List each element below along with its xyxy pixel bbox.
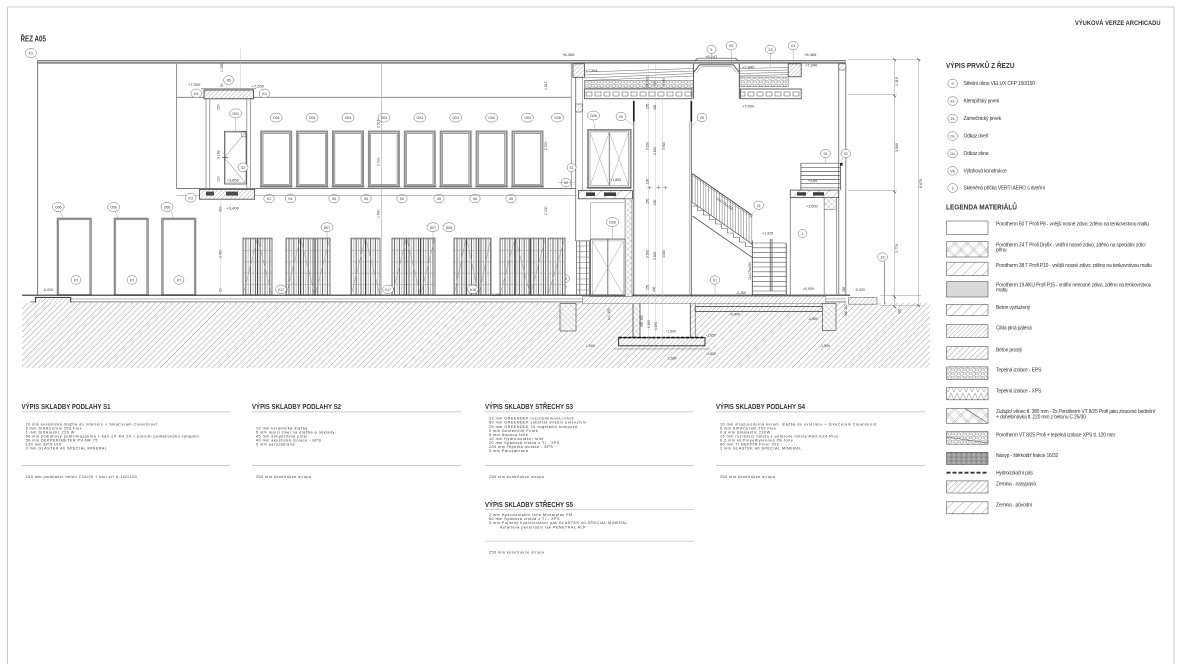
svg-text:8 670: 8 670 xyxy=(919,179,923,188)
svg-text:+3,85: +3,85 xyxy=(808,179,817,183)
svg-text:Hydroizolační pás: Hydroizolační pás xyxy=(996,470,1033,476)
svg-text:14 / 150: 14 / 150 xyxy=(607,308,611,320)
svg-text:100: 100 xyxy=(217,176,221,182)
svg-text:Zx: Zx xyxy=(951,117,955,121)
svg-text:400: 400 xyxy=(652,286,656,292)
svg-text:1 250: 1 250 xyxy=(654,322,658,330)
svg-text:O06: O06 xyxy=(110,206,117,210)
svg-text:K6: K6 xyxy=(437,197,441,201)
svg-text:Z3: Z3 xyxy=(881,256,885,260)
svg-text:490: 490 xyxy=(898,308,902,314)
svg-text:250: 250 xyxy=(645,103,649,109)
svg-text:S5: S5 xyxy=(226,79,230,83)
svg-text:VÝPIS PRVKŮ Z ŘEZU: VÝPIS PRVKŮ Z ŘEZU xyxy=(946,60,1015,70)
svg-text:D07: D07 xyxy=(324,226,330,230)
svg-text:Porotherm 38 T Profi P10 - vně: Porotherm 38 T Profi P10 - vnější nosné … xyxy=(996,263,1152,269)
svg-text:Kx: Kx xyxy=(950,100,954,104)
svg-text:3 500: 3 500 xyxy=(895,143,899,152)
svg-text:950 150: 950 150 xyxy=(640,315,644,327)
svg-text:VÝPIS SKLADBY PODLAHY S1: VÝPIS SKLADBY PODLAHY S1 xyxy=(22,402,111,411)
svg-text:K1: K1 xyxy=(267,197,271,201)
svg-text:Beton vyztužený: Beton vyztužený xyxy=(996,305,1031,311)
svg-text:+1,925: +1,925 xyxy=(762,232,773,236)
svg-text:O06: O06 xyxy=(55,206,62,210)
svg-text:ŘEZ A05: ŘEZ A05 xyxy=(21,33,47,44)
svg-text:O08: O08 xyxy=(554,116,561,120)
svg-text:Zemina - původní: Zemina - původní xyxy=(996,502,1033,509)
svg-text:+7,261: +7,261 xyxy=(586,68,599,73)
svg-text:+7,000: +7,000 xyxy=(742,104,755,109)
svg-text:O04: O04 xyxy=(488,116,495,120)
svg-text:VK: VK xyxy=(950,169,955,173)
svg-text:200 915: 200 915 xyxy=(645,76,649,88)
svg-text:D01: D01 xyxy=(232,112,238,116)
svg-text:2: 2 xyxy=(802,232,804,236)
svg-text:+7,940: +7,940 xyxy=(805,63,818,68)
svg-text:S2: S2 xyxy=(241,166,245,170)
svg-text:D08: D08 xyxy=(446,226,452,230)
svg-text:250 mm konstrukce stropu: 250 mm konstrukce stropu xyxy=(720,475,775,479)
svg-text:maltu: maltu xyxy=(996,288,1008,294)
svg-text:250 mm konstrukce stropu: 250 mm konstrukce stropu xyxy=(489,475,544,479)
svg-text:2 030: 2 030 xyxy=(544,206,548,215)
svg-text:VK: VK xyxy=(700,116,705,120)
svg-text:+ dobetonávka tl. 220 mm z bet: + dobetonávka tl. 220 mm z betonu C 25/3… xyxy=(996,414,1086,420)
svg-text:K18: K18 xyxy=(470,288,476,292)
svg-text:1 085: 1 085 xyxy=(220,63,224,72)
svg-text:2 000: 2 000 xyxy=(377,157,381,166)
svg-text:Z1: Z1 xyxy=(757,204,761,208)
svg-text:-1,500: -1,500 xyxy=(666,330,676,334)
svg-text:250 mm konstrukce stropu: 250 mm konstrukce stropu xyxy=(256,475,311,479)
svg-text:1 630: 1 630 xyxy=(377,209,381,218)
svg-text:250 mm konstrukce stropu: 250 mm konstrukce stropu xyxy=(489,551,544,555)
svg-text:Zámečnický prvek: Zámečnický prvek xyxy=(964,116,1002,122)
svg-text:K6: K6 xyxy=(473,197,477,201)
svg-text:11x175x250: 11x175x250 xyxy=(748,262,752,280)
svg-text:+1,850: +1,850 xyxy=(610,178,621,182)
svg-text:250: 250 xyxy=(645,198,649,204)
svg-text:2 515: 2 515 xyxy=(377,119,381,128)
svg-text:3 500: 3 500 xyxy=(653,252,657,260)
svg-text:+7,250: +7,250 xyxy=(252,84,265,89)
svg-text:+3,500: +3,500 xyxy=(806,205,818,209)
svg-text:-0,020: -0,020 xyxy=(855,288,865,292)
svg-text:K7: K7 xyxy=(177,279,181,283)
svg-text:O04: O04 xyxy=(524,116,531,120)
svg-text:O04: O04 xyxy=(381,116,388,120)
svg-text:915: 915 xyxy=(653,80,657,86)
svg-text:+7,300: +7,300 xyxy=(188,82,201,87)
svg-text:3 193: 3 193 xyxy=(217,150,221,159)
svg-text:150: 150 xyxy=(653,199,657,205)
svg-text:K6: K6 xyxy=(332,197,336,201)
svg-text:Asfaltová penetrační lak PENET: Asfaltová penetrační lak PENETRAL ALP xyxy=(500,525,586,529)
svg-text:Porotherm 50 T Profi P8 - vněj: Porotherm 50 T Profi P8 - vnější nosné z… xyxy=(996,222,1149,228)
svg-text:S2: S2 xyxy=(569,166,573,170)
svg-text:Porotherm VT 8/25 Profi + tepe: Porotherm VT 8/25 Profi + tepelná izolac… xyxy=(996,432,1115,438)
svg-text:Tepelná izolace - EPS: Tepelná izolace - EPS xyxy=(996,368,1042,374)
svg-text:3 335: 3 335 xyxy=(662,78,666,86)
svg-text:-1,800: -1,800 xyxy=(706,352,716,356)
svg-text:5 mm parozábrana: 5 mm parozábrana xyxy=(256,443,295,447)
svg-text:K1: K1 xyxy=(29,52,33,56)
svg-text:Násyp - štěrkodrť frakce 16/32: Násyp - štěrkodrť frakce 16/32 xyxy=(996,453,1058,459)
svg-text:Odkaz okna: Odkaz okna xyxy=(964,151,989,157)
svg-text:250: 250 xyxy=(217,104,221,110)
svg-text:3 500: 3 500 xyxy=(662,142,666,150)
svg-text:4 000: 4 000 xyxy=(662,250,666,258)
svg-text:-0,020: -0,020 xyxy=(43,288,53,292)
svg-text:Cihla plná pálená: Cihla plná pálená xyxy=(996,325,1032,331)
svg-text:50: 50 xyxy=(220,83,224,87)
svg-text:VÝPIS SKLADBY PODLAHY S2: VÝPIS SKLADBY PODLAHY S2 xyxy=(252,402,341,411)
svg-text:+3,400: +3,400 xyxy=(227,206,240,211)
svg-text:3 770: 3 770 xyxy=(895,244,899,253)
svg-text:-0,250: -0,250 xyxy=(736,291,746,295)
svg-text:+8,365: +8,365 xyxy=(562,52,575,57)
svg-text:D06: D06 xyxy=(609,221,615,225)
svg-text:VÝPIS SKLADBY PODLAHY S4: VÝPIS SKLADBY PODLAHY S4 xyxy=(716,402,806,411)
svg-text:3 150: 3 150 xyxy=(645,142,649,150)
svg-text:K6: K6 xyxy=(364,197,368,201)
svg-text:450 150: 450 150 xyxy=(844,304,848,316)
svg-text:450: 450 xyxy=(653,104,657,110)
svg-text:VÝUKOVÁ VERZE ARCHICADU: VÝUKOVÁ VERZE ARCHICADU xyxy=(1075,18,1161,27)
svg-text:Výtahová konstrukce: Výtahová konstrukce xyxy=(964,169,1007,175)
svg-text:-1,500: -1,500 xyxy=(820,344,830,348)
svg-text:3 mm GLASTEK 40 SPECIAL MINERA: 3 mm GLASTEK 40 SPECIAL MINERAL xyxy=(720,447,802,451)
svg-text:K6: K6 xyxy=(288,197,292,201)
svg-text:K7: K7 xyxy=(130,279,134,283)
svg-text:K4: K4 xyxy=(194,92,198,96)
svg-text:250: 250 xyxy=(645,284,649,290)
svg-text:K6: K6 xyxy=(400,197,404,201)
svg-text:1 115: 1 115 xyxy=(895,77,899,86)
svg-text:1,550: 1,550 xyxy=(668,357,677,361)
svg-text:3 500: 3 500 xyxy=(645,250,649,258)
svg-text:VÝPIS SKLADBY STŘECHY S5: VÝPIS SKLADBY STŘECHY S5 xyxy=(485,500,573,509)
svg-text:D06: D06 xyxy=(590,114,596,118)
svg-text:2: 2 xyxy=(952,187,954,191)
svg-text:K2: K2 xyxy=(564,181,568,185)
svg-text:-0,550: -0,550 xyxy=(808,317,818,321)
svg-text:K4: K4 xyxy=(262,92,266,96)
svg-text:2 500: 2 500 xyxy=(544,141,548,150)
svg-text:+7,895: +7,895 xyxy=(742,65,755,70)
svg-text:O04: O04 xyxy=(452,116,459,120)
svg-text:K3: K3 xyxy=(189,196,193,200)
svg-text:LEGENDA MATERIÁLŮ: LEGENDA MATERIÁLŮ xyxy=(946,202,1017,212)
svg-text:3 mm Parozábrana: 3 mm Parozábrana xyxy=(489,449,529,453)
svg-text:3 mm GLASTEK 40 SPECIAL MINER: 3 mm GLASTEK 40 SPECIAL MINERAL xyxy=(26,447,108,451)
svg-text:100: 100 xyxy=(645,178,649,184)
svg-text:S4: S4 xyxy=(823,152,827,156)
svg-text:K6: K6 xyxy=(509,197,513,201)
svg-text:K5: K5 xyxy=(729,44,733,48)
svg-text:S1: S1 xyxy=(713,279,717,283)
svg-text:-1,650: -1,650 xyxy=(706,334,716,338)
svg-text:O04: O04 xyxy=(416,116,423,120)
svg-text:K1: K1 xyxy=(791,44,795,48)
svg-text:Z2: Z2 xyxy=(844,152,848,156)
svg-text:Porotherm 24 T Profi Dryfix -: Porotherm 24 T Profi Dryfix - vnitřní no… xyxy=(996,242,1146,248)
svg-text:Dx: Dx xyxy=(950,135,955,139)
svg-text:Klempířský prvek: Klempířský prvek xyxy=(964,99,1000,105)
svg-text:K17: K17 xyxy=(385,288,391,292)
svg-text:±0,000: ±0,000 xyxy=(803,287,814,291)
svg-text:150 mm podkladní beton C16/20: 150 mm podkladní beton C16/20 + kari síť… xyxy=(26,475,138,479)
svg-text:K7: K7 xyxy=(74,279,78,283)
svg-text:VÝPIS SKLADBY STŘECHY S3: VÝPIS SKLADBY STŘECHY S3 xyxy=(485,402,573,411)
svg-text:D07: D07 xyxy=(430,226,436,230)
svg-text:pěnu: pěnu xyxy=(996,248,1007,254)
svg-text:Skleněná příčka VERTI AERO s d: Skleněná příčka VERTI AERO s dveřmi xyxy=(964,186,1045,192)
svg-text:O06: O06 xyxy=(164,206,171,210)
svg-text:Porotherm 19 AKU Profi P15 -: Porotherm 19 AKU Profi P15 - vnitřní nen… xyxy=(996,282,1152,288)
svg-text:Střešní okno VELUX CFP 150/150: Střešní okno VELUX CFP 150/150 xyxy=(964,81,1036,87)
svg-text:1,500: 1,500 xyxy=(586,344,595,348)
svg-text:O04: O04 xyxy=(345,116,352,120)
svg-text:O04: O04 xyxy=(309,116,316,120)
svg-text:-0,400: -0,400 xyxy=(730,313,740,317)
svg-text:K17: K17 xyxy=(278,288,284,292)
svg-text:O04: O04 xyxy=(273,116,280,120)
svg-text:VK: VK xyxy=(619,115,624,119)
svg-text:1 815: 1 815 xyxy=(544,81,548,90)
svg-text:S3: S3 xyxy=(768,48,772,52)
svg-text:Tepelná izolace - XPS: Tepelná izolace - XPS xyxy=(996,388,1042,394)
svg-text:Zemina - nasypaná: Zemina - nasypaná xyxy=(996,482,1036,488)
svg-text:3 150: 3 150 xyxy=(653,147,657,155)
svg-text:Beton prostý: Beton prostý xyxy=(996,347,1023,353)
svg-text:+8,365: +8,365 xyxy=(804,52,817,57)
svg-text:5: 5 xyxy=(711,48,713,52)
svg-text:+3,850: +3,850 xyxy=(227,178,240,183)
svg-text:Ox: Ox xyxy=(950,152,955,156)
svg-text:1 100: 1 100 xyxy=(647,320,651,328)
svg-text:Odkaz dveří: Odkaz dveří xyxy=(964,134,990,140)
